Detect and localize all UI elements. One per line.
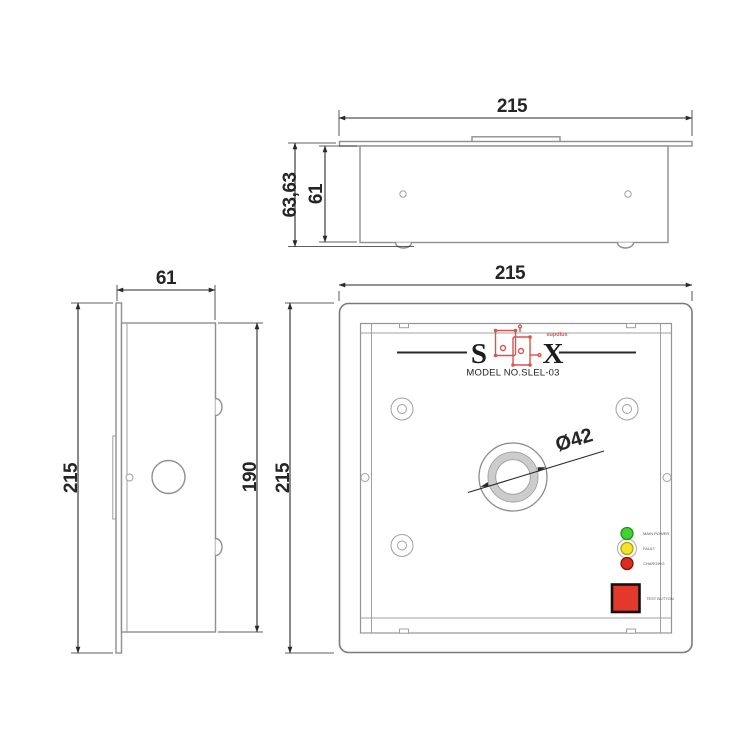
spring-clip-bump: [216, 399, 223, 416]
logo-brand-text: supdlux: [546, 332, 568, 338]
side-screw-hole: [361, 474, 369, 482]
top-width-dimension: 215: [497, 96, 528, 117]
technical-drawing-page: 215 63,63 61 61 215 190: [0, 0, 756, 756]
charging-label: CHARGING: [643, 561, 665, 566]
top-view: 215 63,63 61: [280, 96, 692, 248]
test-button: [612, 585, 640, 613]
enclosure-body-outline: [122, 323, 216, 632]
side-screw-hole: [663, 474, 671, 482]
side-outer-height-dimension: 215: [61, 462, 82, 493]
main-power-led: [621, 528, 633, 540]
mounting-hole: [625, 191, 631, 197]
spring-clip-bump: [618, 243, 634, 249]
circuit-node: [494, 329, 498, 333]
logo-letter-x: X: [543, 338, 564, 370]
model-number-label: MODEL NO.SLEL-03: [466, 368, 559, 379]
knockout-ring-edge: [496, 460, 531, 495]
spring-clip-bump: [396, 243, 412, 249]
charging-led: [621, 558, 633, 570]
mounting-hole: [126, 474, 133, 481]
side-depth-dimension: 61: [156, 268, 177, 289]
top-inner-depth-dimension: 61: [306, 183, 327, 204]
test-button-label: TEST BUTTON: [646, 596, 674, 601]
fault-label: FAULT: [643, 546, 656, 551]
mounting-hole: [400, 191, 406, 197]
circuit-node: [528, 335, 532, 339]
fault-led: [621, 543, 633, 555]
circuit-node: [528, 363, 532, 367]
side-view: 61 215 190: [61, 268, 263, 653]
front-view: 215 215 S: [273, 263, 692, 653]
main-power-label: MAIN POWER: [643, 531, 669, 536]
logo-letter-s: S: [471, 338, 487, 370]
top-outer-depth-dimension: 63,63: [280, 172, 301, 217]
panel-clip: [400, 629, 409, 633]
spring-clip-bump: [216, 539, 223, 556]
side-inner-height-dimension: 190: [240, 462, 261, 492]
circuit-node: [514, 329, 518, 333]
front-height-dimension: 215: [273, 462, 294, 493]
front-flange-outline: [116, 303, 122, 653]
panel-clip: [627, 629, 636, 633]
panel-clip: [400, 324, 409, 328]
panel-clip: [627, 324, 636, 328]
drawing-canvas: 215 63,63 61 61 215 190: [0, 0, 756, 756]
front-width-dimension: 215: [495, 263, 526, 284]
circuit-node: [511, 363, 515, 367]
circuit-node: [494, 354, 498, 358]
